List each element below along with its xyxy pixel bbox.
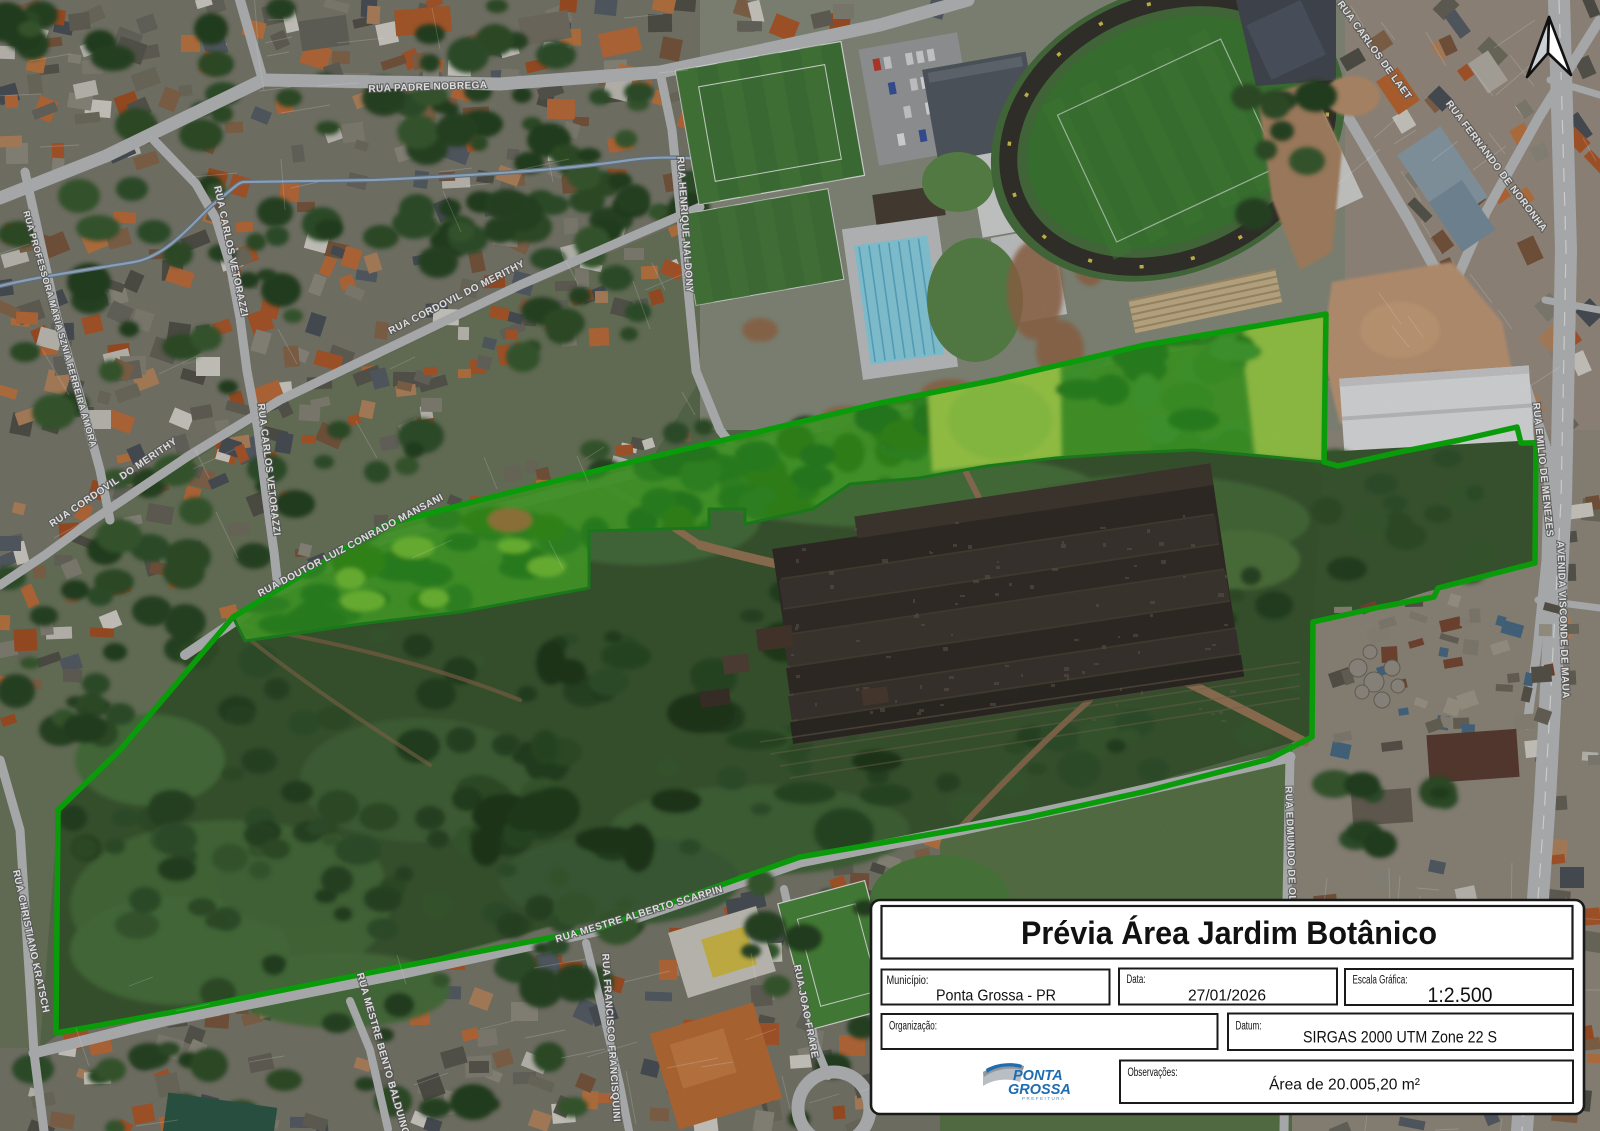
svg-text:Escala Gráfica:: Escala Gráfica: (1353, 975, 1408, 987)
svg-text:27/01/2026: 27/01/2026 (1188, 988, 1266, 1005)
svg-text:Datum:: Datum: (1236, 1021, 1262, 1033)
svg-text:Ponta Grossa - PR: Ponta Grossa - PR (936, 988, 1056, 1005)
svg-text:PREFEITURA: PREFEITURA (1022, 1096, 1066, 1101)
svg-text:Município:: Município: (887, 975, 929, 987)
svg-text:SIRGAS 2000 UTM Zone 22 S: SIRGAS 2000 UTM Zone 22 S (1303, 1029, 1497, 1047)
svg-text:1:2.500: 1:2.500 (1428, 983, 1493, 1007)
svg-text:Área de 20.005,20 m²: Área de 20.005,20 m² (1269, 1075, 1421, 1094)
svg-text:Observações:: Observações: (1128, 1067, 1178, 1079)
svg-text:Data:: Data: (1127, 974, 1146, 986)
svg-text:Organização:: Organização: (889, 1021, 937, 1033)
svg-text:Prévia Área Jardim Botânico: Prévia Área Jardim Botânico (1021, 915, 1437, 951)
